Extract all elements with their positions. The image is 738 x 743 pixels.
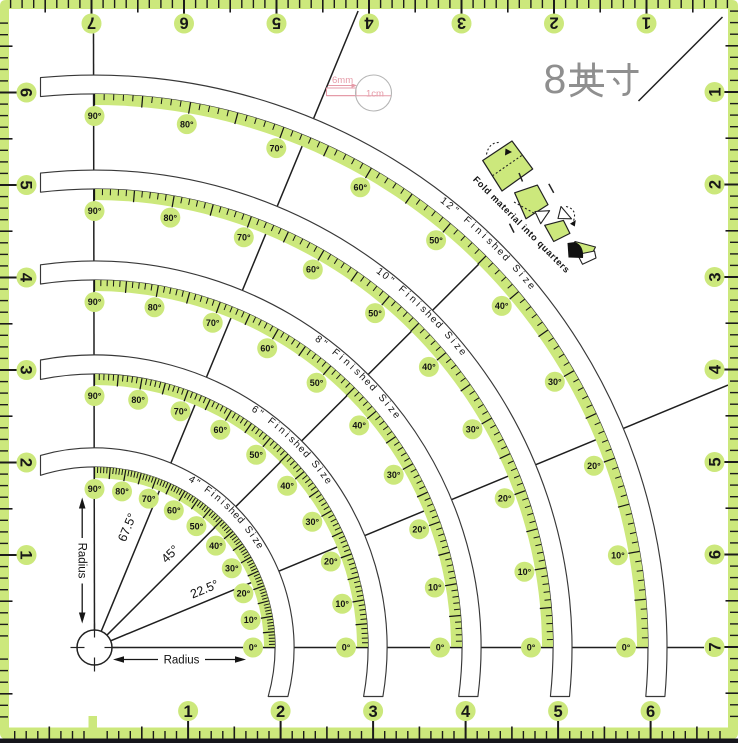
svg-text:30°: 30° — [305, 517, 319, 527]
svg-text:80°: 80° — [115, 487, 129, 497]
svg-text:70°: 70° — [142, 494, 156, 504]
svg-text:50°: 50° — [429, 236, 443, 246]
svg-text:1: 1 — [17, 550, 35, 559]
svg-text:1: 1 — [184, 703, 193, 721]
svg-text:90°: 90° — [88, 111, 102, 121]
svg-text:60°: 60° — [353, 182, 367, 192]
svg-text:Radius: Radius — [75, 543, 87, 579]
svg-text:60°: 60° — [167, 505, 181, 515]
svg-text:40°: 40° — [209, 541, 223, 551]
svg-text:0°: 0° — [342, 643, 351, 653]
svg-text:60°: 60° — [306, 265, 320, 275]
svg-text:50°: 50° — [368, 308, 382, 318]
svg-text:70°: 70° — [174, 406, 188, 416]
svg-text:2: 2 — [549, 14, 558, 32]
svg-text:5: 5 — [554, 703, 563, 721]
svg-text:40°: 40° — [495, 301, 509, 311]
svg-text:20°: 20° — [587, 461, 601, 471]
svg-text:6: 6 — [646, 703, 655, 721]
svg-text:2: 2 — [276, 703, 285, 721]
svg-text:80°: 80° — [180, 119, 194, 129]
svg-text:90°: 90° — [88, 484, 102, 494]
svg-text:20°: 20° — [324, 557, 338, 567]
svg-text:8: 8 — [544, 56, 567, 102]
svg-text:60°: 60° — [213, 425, 227, 435]
svg-text:10°: 10° — [611, 550, 625, 560]
svg-text:10°: 10° — [244, 615, 258, 625]
svg-text:80°: 80° — [148, 302, 162, 312]
svg-text:30°: 30° — [548, 377, 562, 387]
svg-text:50°: 50° — [249, 450, 263, 460]
svg-text:4: 4 — [706, 364, 724, 374]
svg-text:6: 6 — [179, 14, 188, 32]
svg-text:0°: 0° — [436, 643, 445, 653]
svg-text:7: 7 — [87, 14, 96, 32]
svg-text:3: 3 — [706, 272, 724, 281]
svg-text:3: 3 — [17, 365, 35, 374]
svg-text:Radius: Radius — [164, 655, 200, 667]
svg-text:6mm: 6mm — [332, 75, 353, 86]
svg-text:4: 4 — [364, 14, 374, 32]
svg-text:1: 1 — [706, 87, 724, 96]
svg-text:6: 6 — [17, 88, 35, 97]
svg-text:70°: 70° — [237, 233, 251, 243]
svg-text:80°: 80° — [163, 213, 177, 223]
svg-text:20°: 20° — [237, 589, 251, 599]
svg-text:70°: 70° — [206, 318, 220, 328]
svg-text:5: 5 — [17, 180, 35, 189]
svg-text:50°: 50° — [190, 521, 204, 531]
svg-text:40°: 40° — [422, 362, 436, 372]
svg-text:30°: 30° — [387, 470, 401, 480]
svg-text:0°: 0° — [622, 643, 631, 653]
svg-text:1: 1 — [642, 14, 651, 32]
svg-text:0°: 0° — [527, 643, 536, 653]
svg-text:1cm: 1cm — [366, 89, 384, 100]
svg-text:10°: 10° — [518, 567, 532, 577]
svg-text:50°: 50° — [310, 378, 324, 388]
svg-text:90°: 90° — [88, 206, 102, 216]
svg-text:2: 2 — [17, 458, 35, 467]
svg-text:20°: 20° — [412, 525, 426, 535]
svg-text:4: 4 — [461, 703, 471, 721]
svg-text:5: 5 — [272, 14, 281, 32]
svg-text:80°: 80° — [131, 395, 145, 405]
svg-text:5: 5 — [706, 457, 724, 466]
svg-text:0°: 0° — [249, 643, 258, 653]
svg-text:4: 4 — [17, 273, 35, 283]
svg-text:3: 3 — [457, 14, 466, 32]
svg-text:10°: 10° — [428, 583, 442, 593]
svg-text:60°: 60° — [260, 344, 274, 354]
svg-text:2: 2 — [706, 180, 724, 189]
svg-text:7: 7 — [706, 642, 724, 651]
svg-text:3: 3 — [369, 703, 378, 721]
svg-text:70°: 70° — [269, 143, 283, 153]
svg-text:40°: 40° — [280, 481, 294, 491]
svg-text:10°: 10° — [335, 599, 349, 609]
svg-text:30°: 30° — [225, 564, 239, 574]
svg-text:20°: 20° — [498, 493, 512, 503]
svg-text:30°: 30° — [466, 424, 480, 434]
svg-text:6: 6 — [706, 550, 724, 559]
svg-text:40°: 40° — [352, 421, 366, 431]
svg-text:90°: 90° — [88, 391, 102, 401]
svg-text:90°: 90° — [88, 297, 102, 307]
